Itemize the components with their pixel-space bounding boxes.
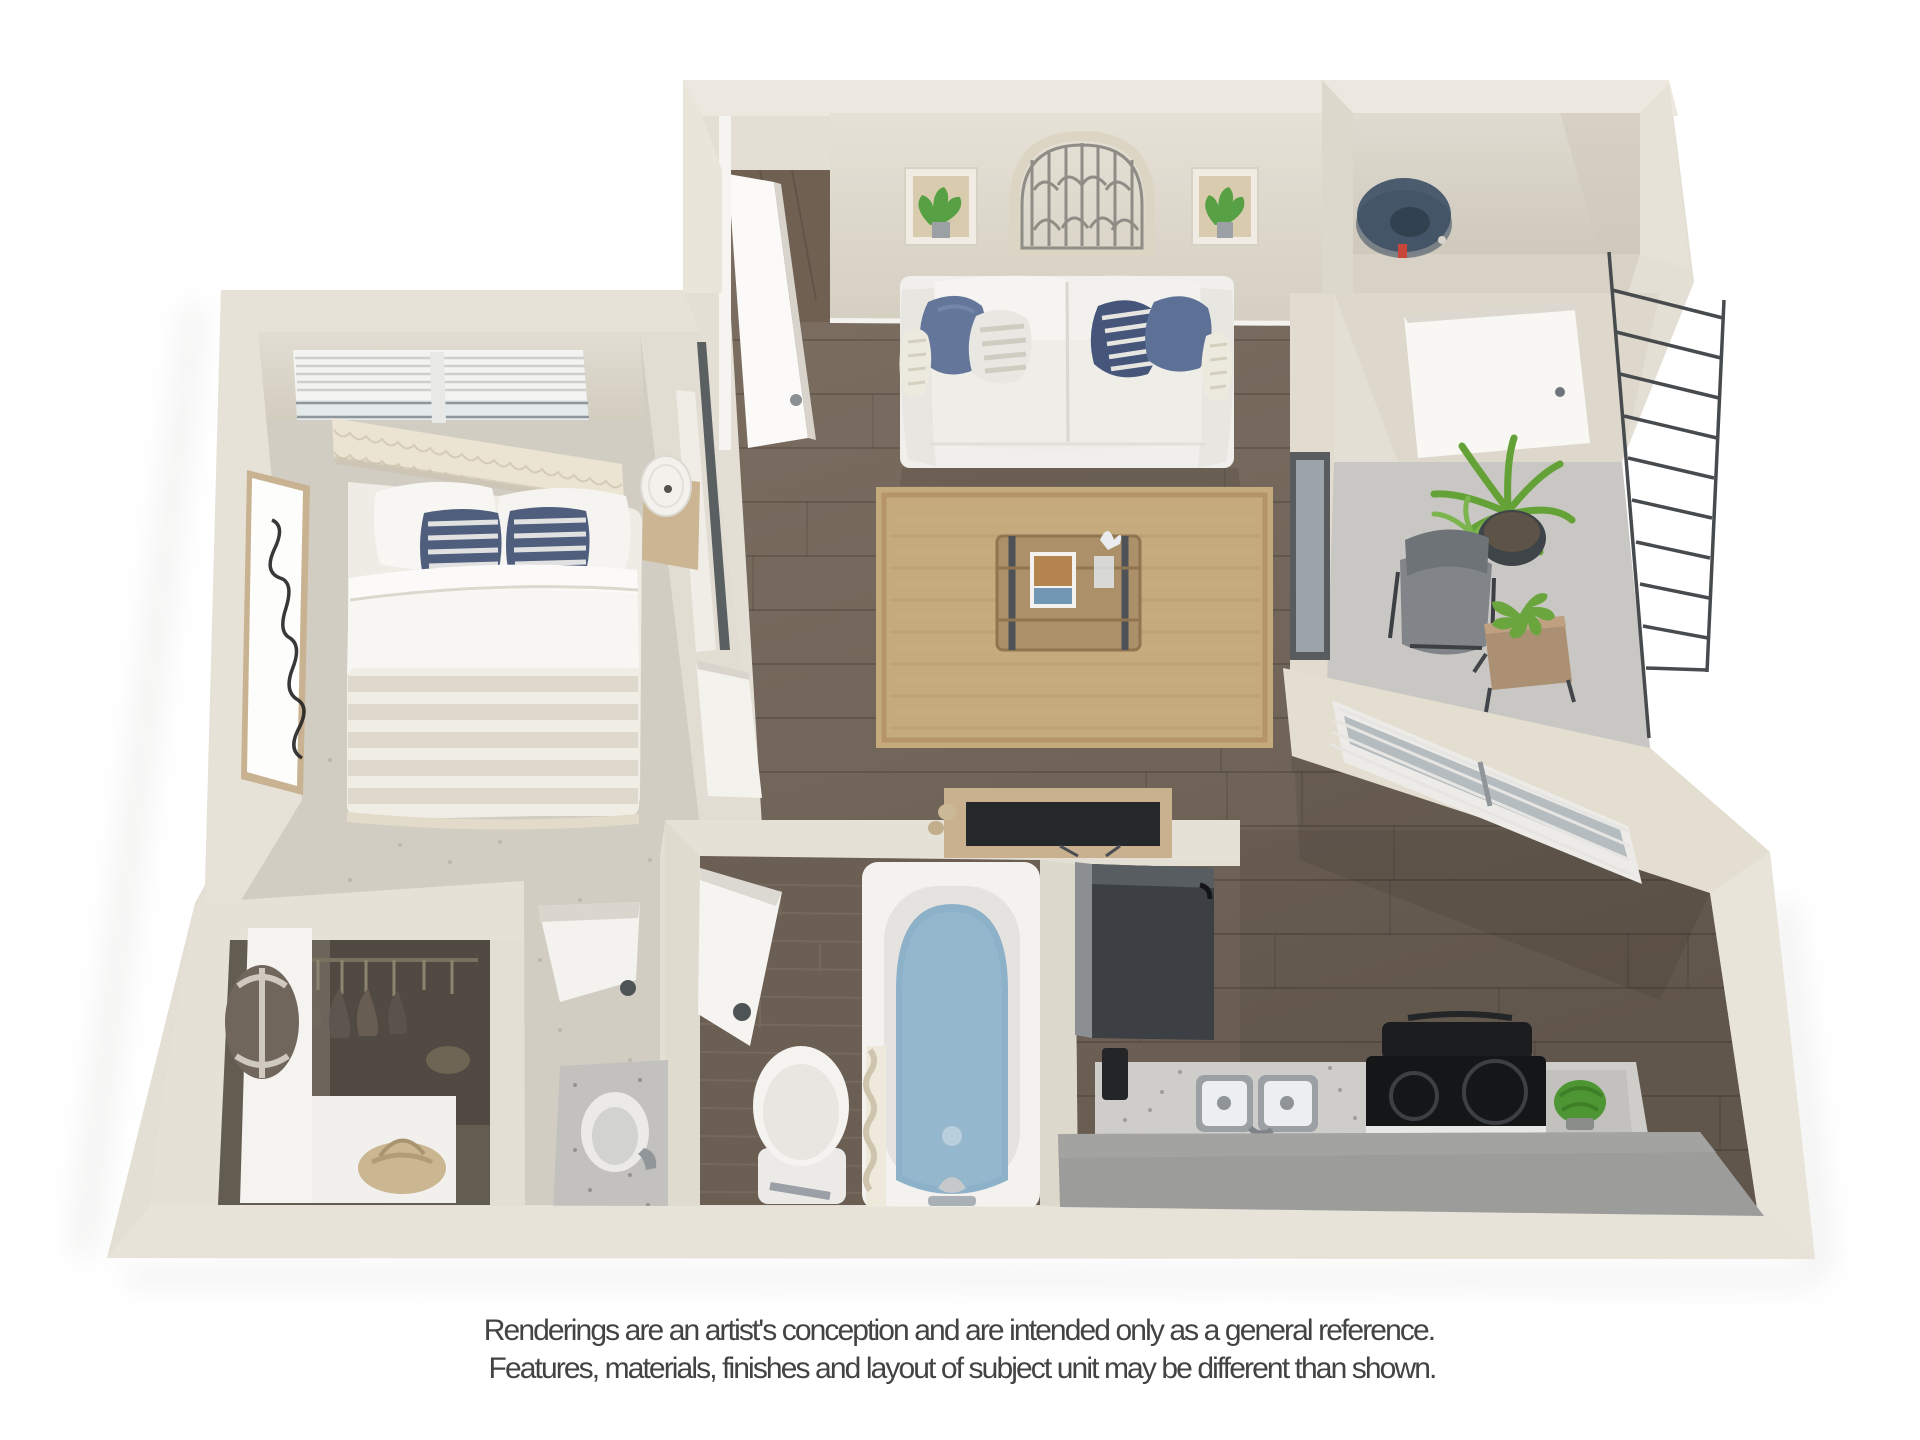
svg-text:Features, materials, finishes: Features, materials, finishes and layout… — [489, 1352, 1436, 1385]
svg-text:Renderings are an artist's con: Renderings are an artist's conception an… — [484, 1314, 1434, 1347]
